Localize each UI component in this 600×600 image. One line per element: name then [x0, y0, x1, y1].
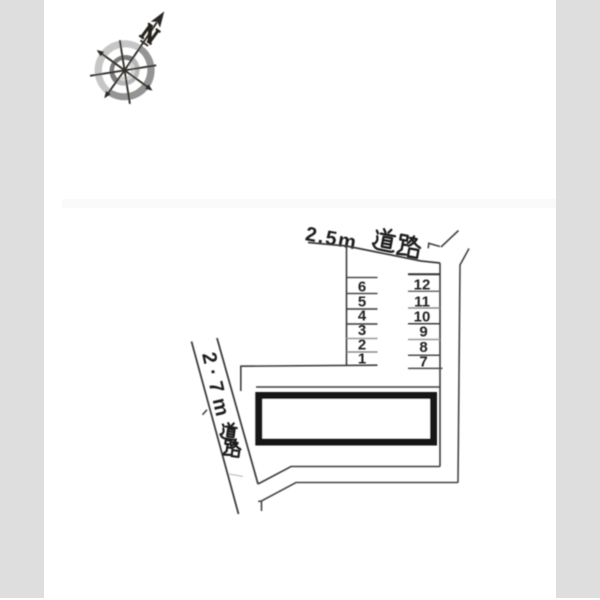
svg-text:9: 9 — [419, 324, 427, 341]
svg-text:12: 12 — [414, 277, 431, 294]
svg-text:7: 7 — [419, 354, 427, 371]
svg-text:1: 1 — [358, 351, 366, 368]
